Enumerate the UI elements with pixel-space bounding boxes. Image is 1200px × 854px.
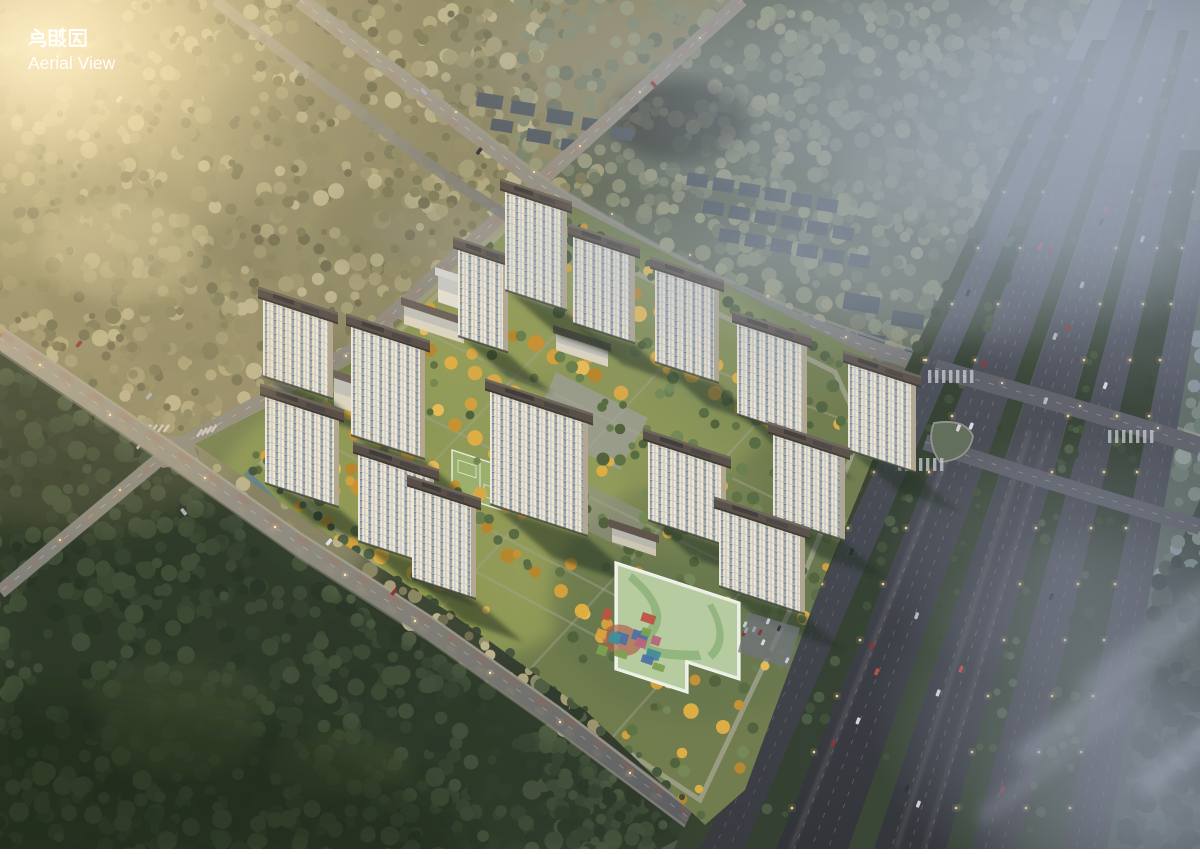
svg-text:Aerial View: Aerial View bbox=[28, 53, 116, 73]
